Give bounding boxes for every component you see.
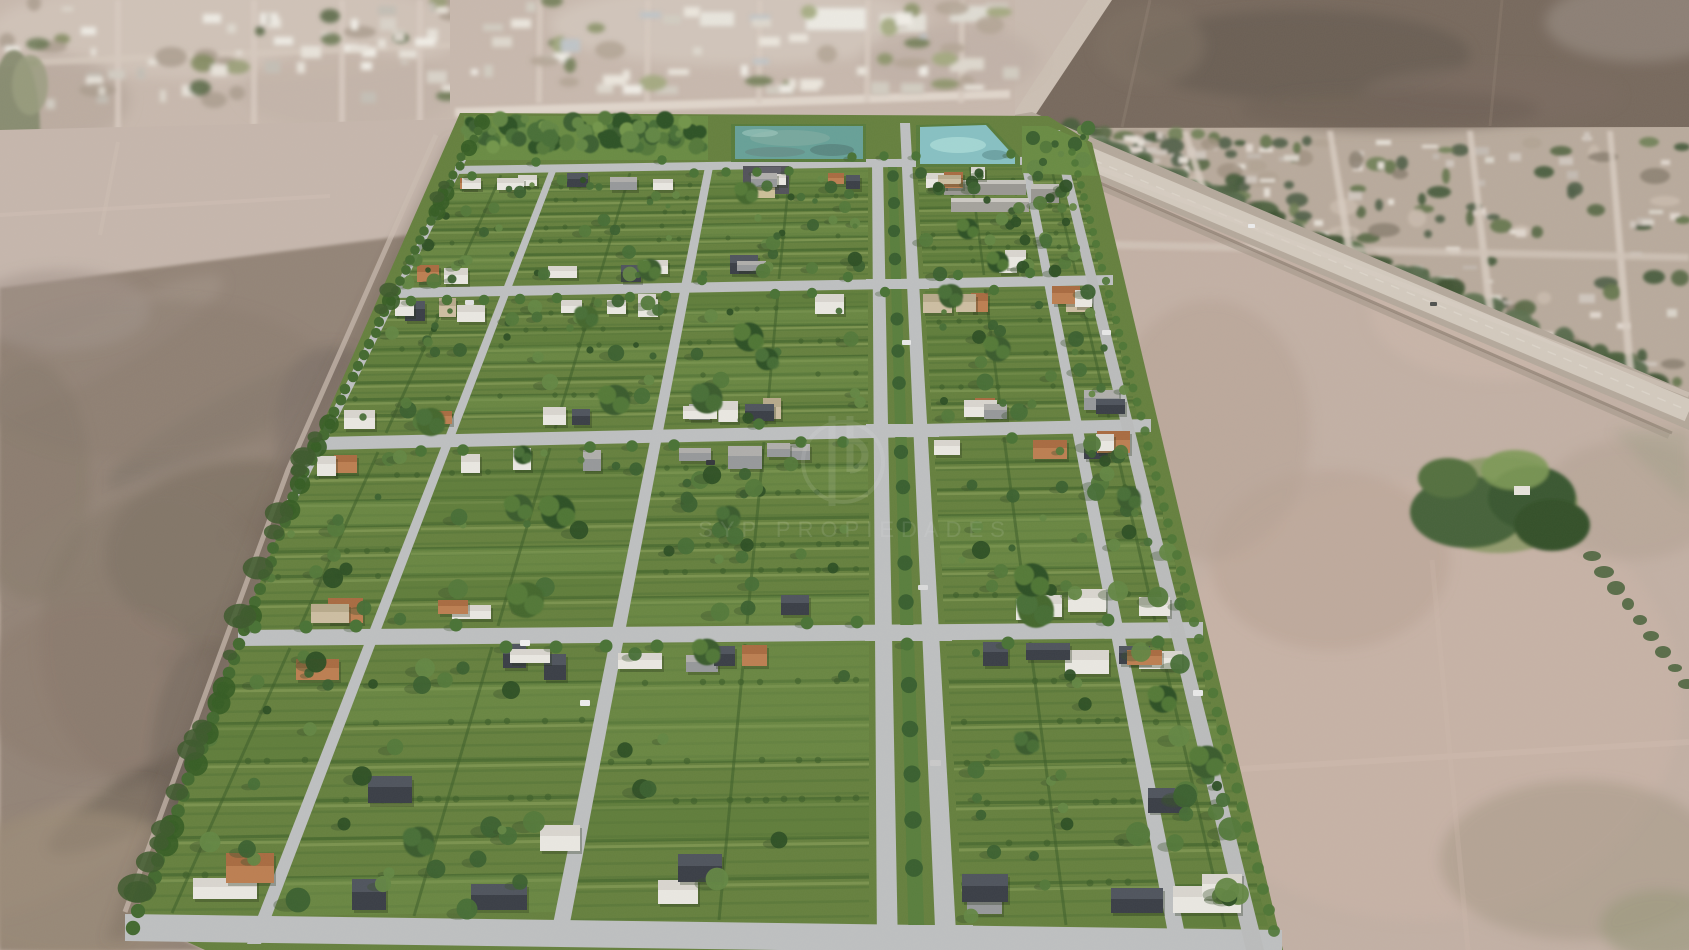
svg-text:SYP PROPIEDADES: SYP PROPIEDADES — [698, 517, 1012, 542]
